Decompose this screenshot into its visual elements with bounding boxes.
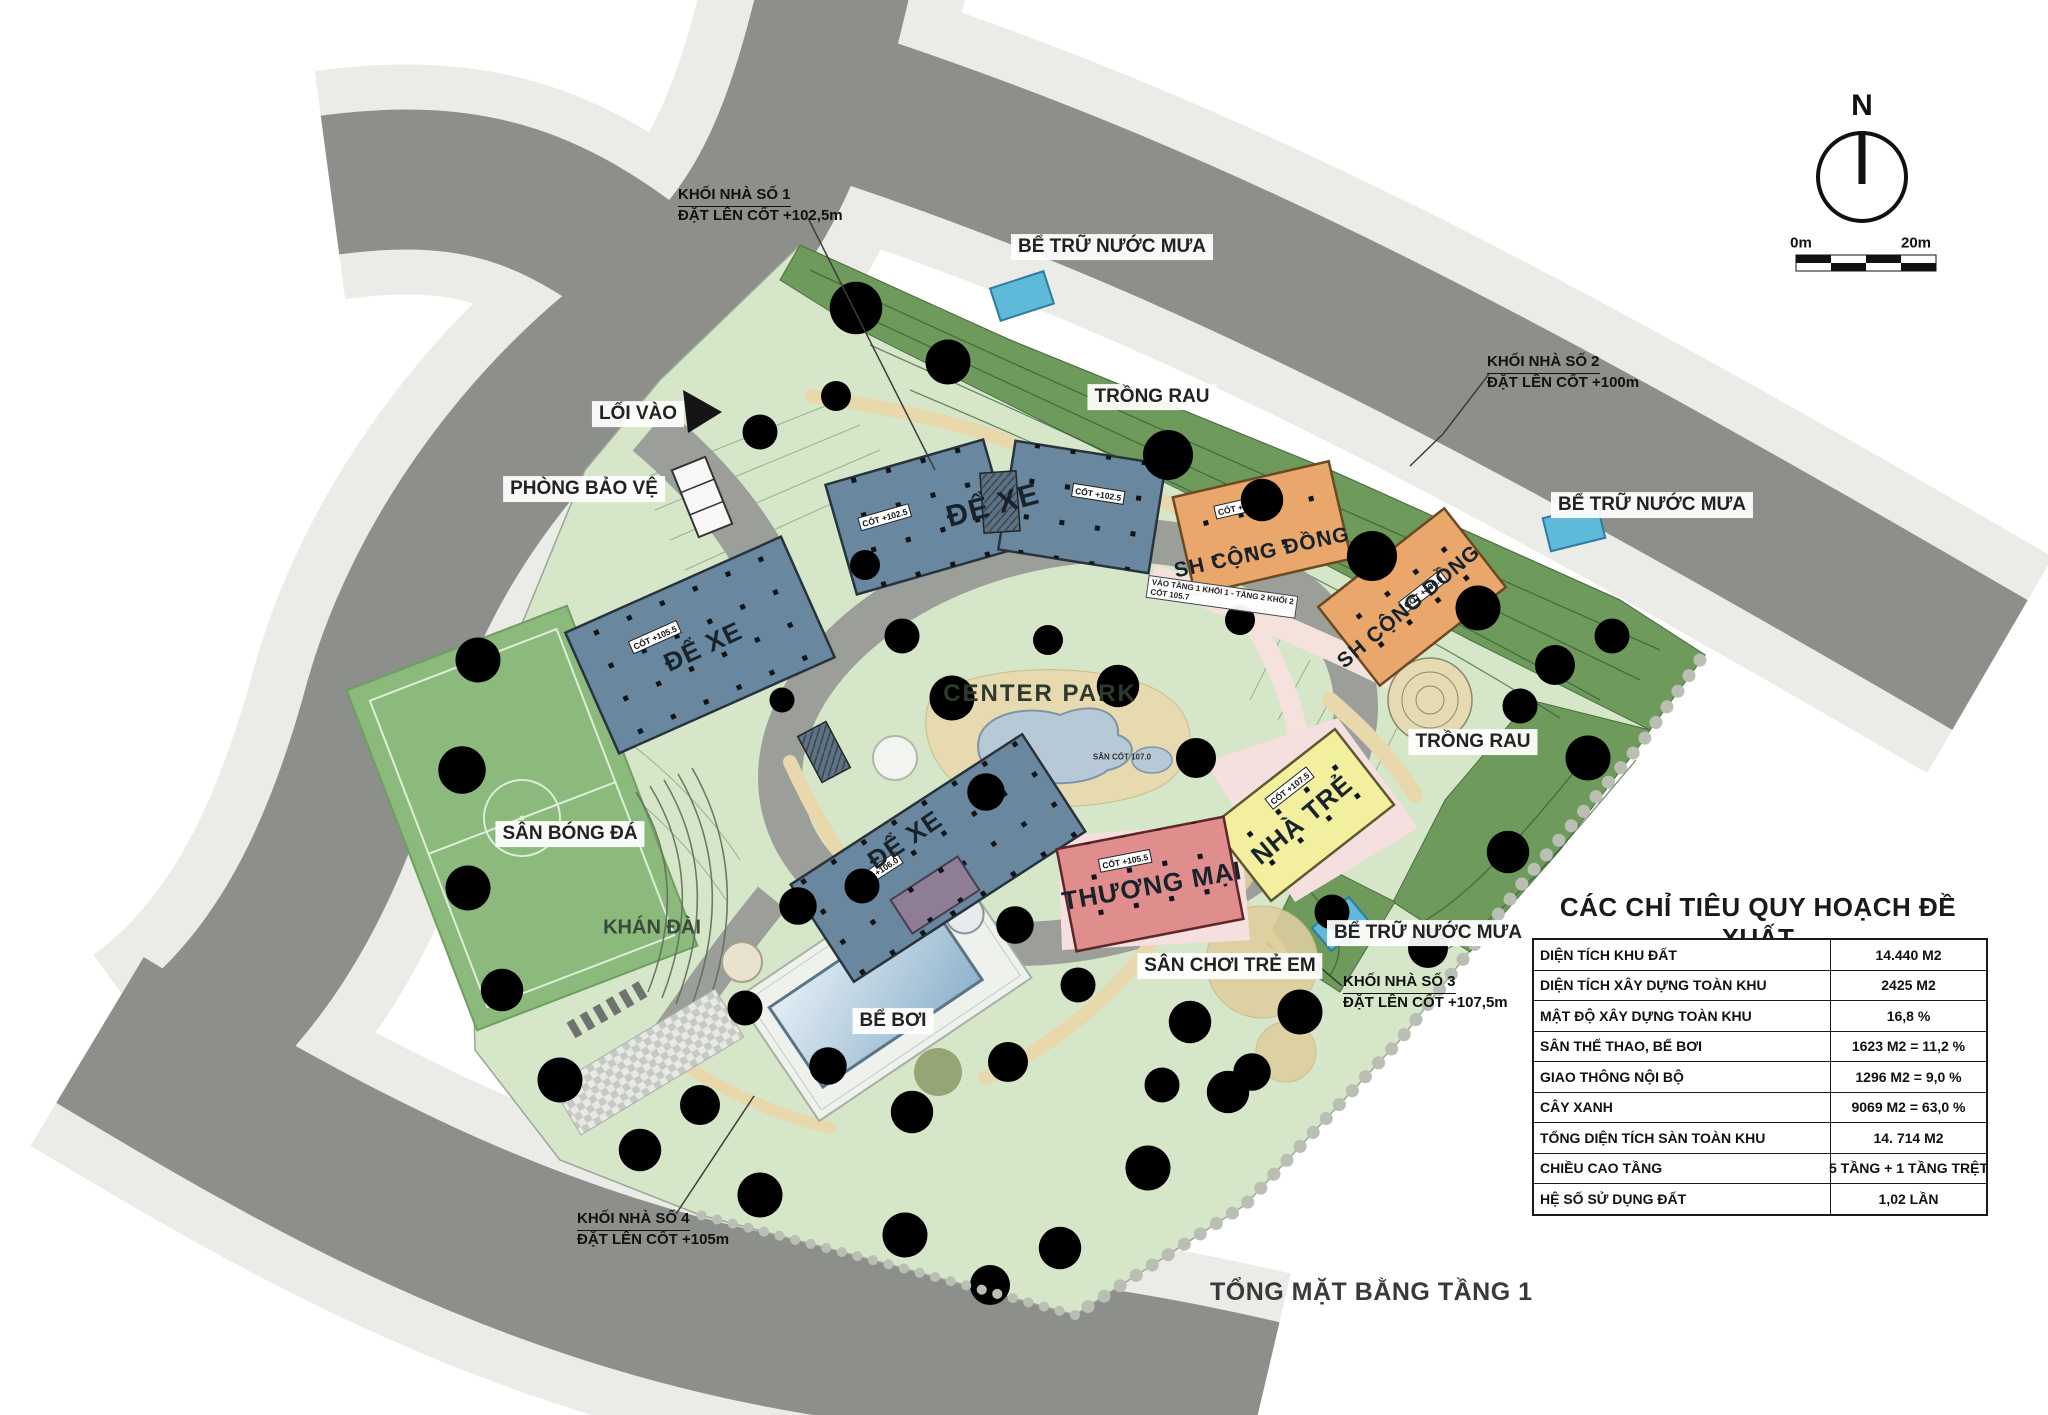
site-plan-sheet: CỐT +102.5 CỐT +102.5 CỐT +105.5 CỐT +10…: [0, 0, 2048, 1415]
lawn-mound: [914, 1048, 962, 1096]
annotation-block-2: KHỐI NHÀ SỐ 2 ĐẶT LÊN CỐT +100m: [1487, 353, 1639, 393]
label-park-level: SÂN CỐT 107.0: [1093, 753, 1151, 762]
scale-label-0: 0m: [1790, 235, 1812, 252]
table-row: SÂN THỂ THAO, BỂ BƠI1623 M2 = 11,2 %: [1534, 1031, 1986, 1062]
table-row: TỔNG DIỆN TÍCH SÀN TOÀN KHU14. 714 M2: [1534, 1122, 1986, 1153]
toddler-pool: [722, 942, 762, 982]
label-entrance: LỐI VÀO: [592, 401, 684, 427]
label-rainwater-tank-right: BỂ TRỮ NƯỚC MƯA: [1551, 492, 1753, 518]
label-vegetable-garden-top: TRỒNG RAU: [1087, 384, 1216, 410]
label-guard-house: PHÒNG BẢO VỆ: [503, 476, 665, 502]
table-row: CHIỀU CAO TẦNG5 TẦNG + 1 TẦNG TRỆT: [1534, 1153, 1986, 1184]
label-swimming-pool: BỂ BƠI: [853, 1008, 934, 1034]
label-rainwater-tank-bottom: BỂ TRỮ NƯỚC MƯA: [1327, 920, 1529, 946]
label-playground: SÂN CHƠI TRẺ EM: [1137, 953, 1322, 979]
north-arrow-icon: [1818, 131, 1906, 221]
table-row: GIAO THÔNG NỘI BỘ1296 M2 = 9,0 %: [1534, 1061, 1986, 1092]
annotation-block-4: KHỐI NHÀ SỐ 4 ĐẶT LÊN CỐT +105m: [577, 1210, 729, 1250]
label-rainwater-tank-top: BỂ TRỮ NƯỚC MƯA: [1011, 234, 1213, 260]
north-label: N: [1851, 89, 1873, 123]
table-row: CÂY XANH9069 M2 = 63,0 %: [1534, 1092, 1986, 1123]
scale-label-20: 20m: [1901, 235, 1931, 252]
table-row: DIỆN TÍCH XÂY DỰNG TOÀN KHU2425 M2: [1534, 970, 1986, 1001]
table-row: HỆ SỐ SỬ DỤNG ĐẤT1,02 LẦN: [1534, 1183, 1986, 1214]
label-vegetable-garden-right: TRỒNG RAU: [1408, 729, 1537, 755]
label-football-field: SÂN BÓNG ĐÁ: [495, 821, 644, 847]
scale-bar: [1796, 255, 1936, 271]
sheet-title: TỔNG MẶT BẰNG TẦNG 1: [1210, 1278, 1533, 1307]
annotation-block-3: KHỐI NHÀ SỐ 3 ĐẶT LÊN CỐT +107,5m: [1343, 973, 1508, 1013]
annotation-block-1: KHỐI NHÀ SỐ 1 ĐẶT LÊN CỐT +102,5m: [678, 186, 843, 226]
planning-table: DIỆN TÍCH KHU ĐẤT14.440 M2 DIỆN TÍCH XÂY…: [1532, 938, 1988, 1216]
label-center-park: CENTER PARK: [943, 680, 1137, 708]
table-row: DIỆN TÍCH KHU ĐẤT14.440 M2: [1534, 940, 1986, 970]
label-grandstand: KHÁN ĐÀI: [603, 917, 701, 940]
table-row: MẬT ĐỘ XÂY DỰNG TOÀN KHU16,8 %: [1534, 1000, 1986, 1031]
